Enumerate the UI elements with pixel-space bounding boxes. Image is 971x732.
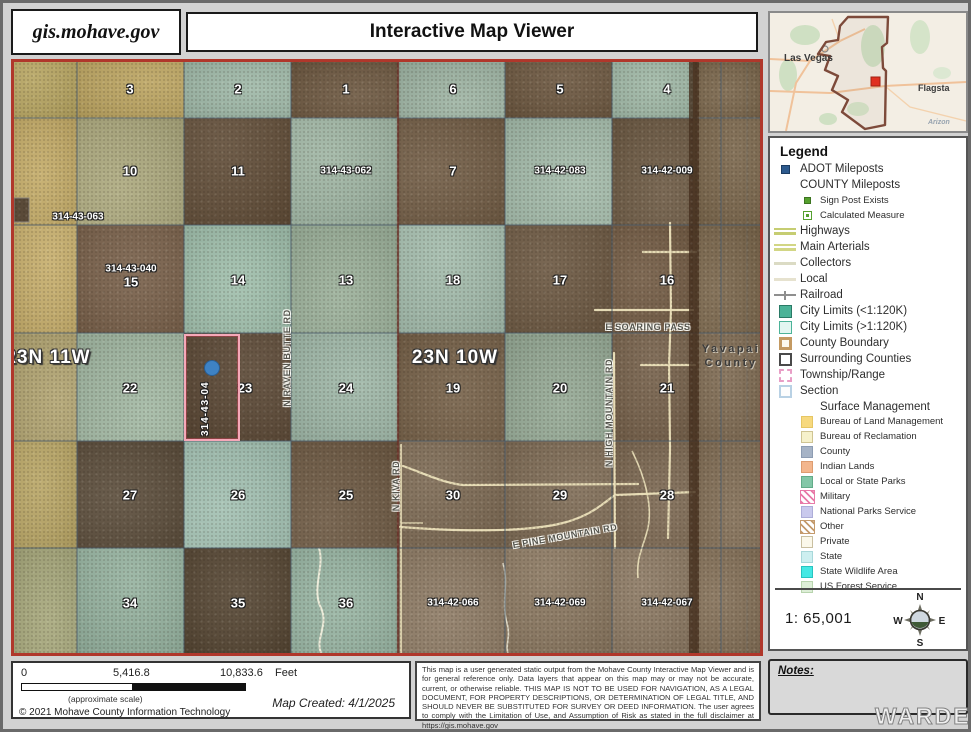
legend-items: ADOT MilepostsCOUNTY MilepostsSign Post … [770,161,966,594]
legend-item: Other [794,519,966,534]
legend-item-label: City Limits (<1:120K) [800,305,907,317]
scalebar-tick-1: 5,416.8 [113,667,150,679]
legend-item: Surrounding Counties [770,351,966,367]
legend-item: Bureau of Reclamation [794,429,966,444]
parcel-label: 314-42-009 [641,166,692,177]
site-logo-box: gis.mohave.gov [11,9,181,55]
section-label: 30 [446,488,460,503]
legend-hatch-swatch [794,490,820,504]
legend-square-swatch [770,165,800,174]
legend-item: Surface Management [794,399,966,414]
svg-text:W: W [893,616,903,627]
parcel-label: 314-42-067 [641,598,692,609]
section-label: 24 [339,381,353,396]
section-label: 11 [231,164,245,179]
scale-ratio: 1: 65,001 [785,610,852,627]
legend-item-label: National Parks Service [820,506,916,517]
section-label: 15 [124,275,138,290]
section-label: 34 [123,596,137,611]
legend-item-label: State [820,551,842,562]
legend-item-label: Bureau of Land Management [820,416,943,427]
legend-dotsquare-swatch [794,211,820,220]
svg-text:N: N [916,592,923,603]
scalebar-approx-note: (approximate scale) [68,694,143,704]
legend-item: Local or State Parks [794,474,966,489]
legend-item: ADOT Mileposts [770,161,966,177]
legend-item: Section [770,383,966,399]
legend-item-label: Sign Post Exists [820,195,889,206]
section-label: 27 [123,488,137,503]
svg-text:S: S [917,638,924,647]
scalebar-tick-0: 0 [21,667,27,679]
road-label: E SOARING PASS [605,322,690,332]
legend-item: State Wildlife Area [794,564,966,579]
legend-item-label: State Wildlife Area [820,566,898,577]
legend-square-swatch [794,446,820,458]
legend-square-swatch [770,321,800,334]
legend-scale-section: 1: 65,001 N S E W [775,588,961,646]
scalebar-tick-2: 10,833.6 [220,667,263,679]
legend-square-swatch [794,551,820,563]
legend-square-swatch [794,416,820,428]
legend-square-swatch [794,476,820,488]
legend-square-swatch [770,369,800,382]
legend-item: National Parks Service [794,504,966,519]
legend-square-swatch [794,566,820,578]
legend-title: Legend [770,138,966,161]
section-label: 18 [446,273,460,288]
legend-item-label: County Boundary [800,337,889,349]
legend-item-label: Indian Lands [820,461,874,472]
legend-panel: Legend ADOT MilepostsCOUNTY MilepostsSig… [768,136,968,651]
section-label: 22 [123,381,137,396]
section-label: 16 [660,273,674,288]
legend-square-swatch [770,385,800,398]
legend-item-label: Surface Management [820,401,930,413]
notes-title: Notes: [778,665,814,677]
legend-square-swatch [794,506,820,518]
legend-item-label: Private [820,536,850,547]
legend-hatch-swatch [794,520,820,534]
page-title-box: Interactive Map Viewer [186,12,758,52]
legend-item: Calculated Measure [794,208,966,223]
legend-item: City Limits (<1:120K) [770,303,966,319]
township-label: 23N 10W [412,347,498,369]
disclaimer-box: This map is a user generated static outp… [415,661,761,721]
svg-text:E: E [939,616,946,627]
section-label: 20 [553,381,567,396]
legend-item: Local [770,271,966,287]
legend-item-label: Surrounding Counties [800,353,911,365]
section-label: 5 [556,82,563,97]
section-label: 19 [446,381,460,396]
section-label: 13 [339,273,353,288]
legend-item: County Boundary [770,335,966,351]
parcel-label: 314-43-062 [320,166,371,177]
map-viewport[interactable]: 3216541011715141318171622232419202127262… [11,59,763,656]
section-label: 17 [553,273,567,288]
section-label: 26 [231,488,245,503]
road-label: N HIGH MOUNTAIN RD [604,359,614,467]
wardex-watermark: WARDEX [875,703,971,730]
parcel-label: 314-42-069 [534,598,585,609]
legend-item-label: Section [800,385,838,397]
legend-square-swatch [794,536,820,548]
legend-item: Highways [770,223,966,239]
parcel-label: 314-42-066 [427,598,478,609]
legend-item-label: Railroad [800,289,843,301]
legend-square-swatch [794,461,820,473]
legend-item: County [794,444,966,459]
legend-item-label: Local [800,273,828,285]
road-label: N KIVA RD [391,461,401,511]
legend-item-label: Calculated Measure [820,210,905,221]
legend-item: Collectors [770,255,966,271]
road-label: E PINE MOUNTAIN RD [512,522,618,550]
section-label: 7 [449,164,456,179]
legend-item: Military [794,489,966,504]
map-created-date: Map Created: 4/1/2025 [272,696,395,710]
parcel-label: 314-43-063 [52,212,103,223]
section-label: 35 [231,596,245,611]
legend-item-label: County [820,446,850,457]
section-label: 2 [234,82,241,97]
legend-item-label: Collectors [800,257,851,269]
section-label: 6 [449,82,456,97]
overview-inset-map: Las Vegas Flagsta Arizon [768,11,968,133]
site-logo-text: gis.mohave.gov [33,21,160,44]
page-title: Interactive Map Viewer [370,21,575,43]
legend-square-swatch [770,353,800,366]
legend-square-swatch [770,337,800,350]
copyright-text: © 2021 Mohave County Information Technol… [19,707,230,718]
legend-item: Private [794,534,966,549]
county-name-label: County [705,357,758,369]
legend-item: State [794,549,966,564]
section-label: 14 [231,273,245,288]
selected-parcel-label: 314-43-04 [200,366,211,436]
scalebar-box: 0 5,416.8 10,833.6 Feet (approximate sca… [11,661,411,719]
legend-item: Sign Post Exists [794,193,966,208]
parcel-label: 314-42-083 [534,166,585,177]
township-label: 23N 11W [11,347,91,369]
section-label: 10 [123,164,137,179]
legend-item: Indian Lands [794,459,966,474]
legend-item-label: Main Arterials [800,241,870,253]
legend-item: Main Arterials [770,239,966,255]
map-labels-layer: 3216541011715141318171622232419202127262… [14,62,760,653]
section-label: 3 [126,82,133,97]
legend-item-label: City Limits (>1:120K) [800,321,907,333]
legend-item: City Limits (>1:120K) [770,319,966,335]
compass-rose-icon: N S E W [893,591,947,647]
legend-item: COUNTY Mileposts [770,177,966,193]
legend-item-label: Bureau of Reclamation [820,431,917,442]
scalebar-graphic [21,683,246,691]
section-label: 1 [342,82,349,97]
inset-map-graphic [770,13,966,131]
legend-item-label: COUNTY Mileposts [800,179,900,191]
legend-square-swatch [794,431,820,443]
county-name-label: Yavapai [702,343,760,355]
legend-square-swatch [770,305,800,318]
parcel-label: 314-43-040 [105,264,156,275]
legend-line-swatch [770,262,800,265]
legend-square-swatch [794,197,820,204]
section-label: 28 [660,488,674,503]
legend-item-label: Other [820,521,844,532]
section-label: 21 [660,381,674,396]
legend-rail-swatch [770,291,800,300]
legend-line-swatch [770,278,800,281]
road-label: N RAVEN BUTTE RD [282,309,292,406]
legend-item-label: Military [820,491,850,502]
legend-dline-swatch [770,244,800,251]
section-label: 29 [553,488,567,503]
selected-parcel-outline[interactable]: 314-43-04 [184,334,240,441]
map-viewer-page: gis.mohave.gov Interactive Map Viewer 32… [0,0,971,732]
section-label: 25 [339,488,353,503]
legend-item-label: ADOT Mileposts [800,163,884,175]
legend-item-label: Highways [800,225,850,237]
legend-item-label: Local or State Parks [820,476,906,487]
legend-item: Bureau of Land Management [794,414,966,429]
legend-item: Township/Range [770,367,966,383]
section-label: 36 [339,596,353,611]
legend-item-label: Township/Range [800,369,885,381]
scalebar-unit: Feet [275,667,297,679]
legend-dline-swatch [770,228,800,235]
legend-item: Railroad [770,287,966,303]
section-label: 4 [663,82,670,97]
disclaimer-text: This map is a user generated static outp… [422,665,754,730]
